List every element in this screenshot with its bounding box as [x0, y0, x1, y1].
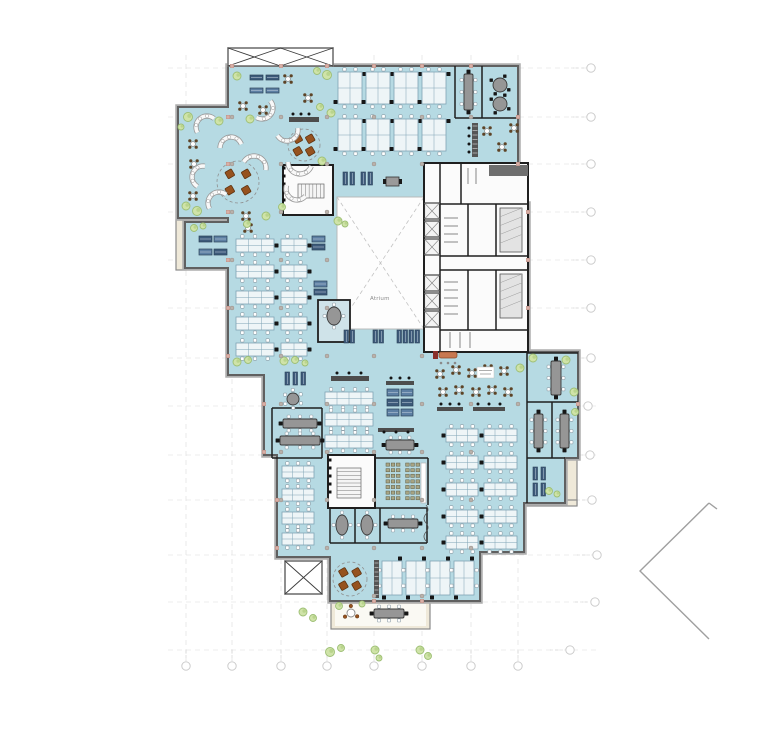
chair — [399, 152, 402, 155]
chair — [450, 443, 453, 446]
auditorium-seat — [391, 485, 395, 488]
bench-cushion — [289, 168, 292, 171]
column-marker — [372, 498, 376, 502]
plant-leaf — [246, 222, 249, 225]
cafe-chair — [290, 81, 293, 84]
cafe-chair — [310, 93, 313, 96]
chair-dark — [442, 515, 446, 519]
chair-dark — [563, 448, 567, 452]
chair — [510, 532, 513, 535]
column-marker — [325, 402, 329, 406]
round-table — [493, 97, 507, 111]
cafe-chair — [445, 394, 448, 397]
chair — [299, 331, 302, 334]
auditorium-seat — [406, 474, 410, 477]
chair-dark — [398, 557, 402, 561]
chair — [488, 506, 491, 509]
plant-leaf — [312, 616, 315, 619]
auditorium-seat — [416, 463, 420, 466]
column-marker — [325, 210, 329, 214]
chair — [460, 425, 463, 428]
chair — [402, 584, 405, 587]
chair — [299, 279, 302, 282]
chair — [253, 235, 256, 238]
cafe-chair — [265, 105, 268, 108]
cafe-chair — [494, 385, 497, 388]
chair — [341, 409, 344, 412]
cafe-chair — [487, 385, 490, 388]
chair — [460, 90, 463, 93]
cafe-chair — [503, 394, 506, 397]
stool — [468, 143, 471, 146]
auditorium-seat — [406, 497, 410, 500]
chair — [562, 388, 565, 391]
print-station — [386, 177, 399, 186]
chair — [284, 393, 287, 396]
chair — [556, 441, 559, 444]
chair — [562, 376, 565, 379]
chair-dark — [480, 541, 484, 545]
cafe-chair — [499, 373, 502, 376]
column-marker — [469, 115, 473, 119]
chair — [307, 525, 310, 528]
chair — [488, 550, 491, 553]
column-marker — [230, 115, 234, 119]
column-marker — [325, 115, 329, 119]
chair-dark — [554, 395, 558, 399]
chair — [450, 452, 453, 455]
cafe-chair — [188, 191, 191, 194]
cafe-chair — [482, 133, 485, 136]
chair — [285, 446, 288, 449]
sofa — [439, 352, 457, 358]
column-marker — [230, 210, 234, 214]
auditorium-seat — [411, 469, 415, 472]
stool — [300, 113, 303, 116]
chair-dark — [563, 410, 567, 414]
auditorium-seat — [386, 474, 390, 477]
wall-column-marker — [526, 258, 530, 262]
bench-cushion — [206, 199, 209, 202]
podium — [421, 463, 426, 503]
chair — [253, 313, 256, 316]
chair — [488, 532, 491, 535]
chair — [296, 529, 299, 532]
chair-dark — [414, 443, 418, 447]
wall-column-marker — [420, 599, 424, 603]
cafe-chair — [442, 369, 445, 372]
chair — [499, 452, 502, 455]
chair-dark — [279, 422, 283, 426]
grid-bubble — [588, 496, 596, 504]
cafe-chair — [188, 198, 191, 201]
chair — [450, 425, 453, 428]
stool — [292, 113, 295, 116]
plant-leaf — [345, 222, 348, 225]
bench — [437, 407, 463, 411]
cafe-chair — [188, 139, 191, 142]
chair — [253, 331, 256, 334]
chair — [365, 427, 368, 430]
chair — [286, 339, 289, 342]
plant-leaf — [187, 114, 191, 118]
chair — [286, 502, 289, 505]
grid-bubble — [587, 208, 595, 216]
chair — [286, 485, 289, 488]
chair-dark — [275, 348, 279, 352]
chair — [332, 523, 335, 526]
chair — [510, 425, 513, 428]
cafe-chair — [506, 373, 509, 376]
chair — [286, 529, 289, 532]
auditorium-seat — [386, 497, 390, 500]
chair — [547, 376, 550, 379]
column-marker — [279, 402, 283, 406]
cafe-chair — [241, 218, 244, 221]
chair-dark — [480, 434, 484, 438]
chair — [398, 451, 401, 454]
bench-cushion — [285, 191, 288, 194]
bench-cushion — [295, 134, 298, 137]
bench-cushion — [248, 155, 251, 158]
column-marker — [279, 115, 283, 119]
chair — [427, 152, 430, 155]
cafe-table — [261, 108, 266, 113]
chair — [341, 431, 344, 434]
chair-dark — [404, 612, 408, 616]
auditorium-seat — [391, 469, 395, 472]
plant-leaf — [181, 125, 184, 128]
cafe-chair — [195, 139, 198, 142]
plant-leaf — [218, 118, 222, 122]
bench — [386, 381, 414, 385]
cafe-chair — [283, 74, 286, 77]
chair — [438, 68, 441, 71]
cafe-chair — [489, 126, 492, 129]
wall-column-marker — [275, 498, 279, 502]
chair-dark — [334, 147, 338, 151]
chair — [530, 441, 533, 444]
grid-bubble — [586, 451, 594, 459]
chair — [510, 524, 513, 527]
chair — [354, 115, 357, 118]
chair — [488, 497, 491, 500]
chair — [286, 279, 289, 282]
chair-dark — [275, 296, 279, 300]
cafe-chair — [250, 230, 253, 233]
cafe-table — [485, 129, 490, 134]
chair — [438, 105, 441, 108]
wall-castellation — [283, 199, 286, 202]
chair — [471, 506, 474, 509]
meeting-table — [374, 609, 404, 618]
cafe-chair — [478, 394, 481, 397]
chair-dark — [362, 100, 366, 104]
column-marker — [279, 450, 283, 454]
column-marker — [420, 594, 424, 598]
chair — [411, 529, 414, 532]
bench-cushion — [296, 172, 299, 175]
bench-cushion — [227, 135, 230, 138]
cafe-chair — [349, 604, 353, 608]
wall-column-marker — [279, 64, 283, 68]
column-marker — [279, 210, 283, 214]
bench-cushion — [263, 160, 266, 163]
chair — [499, 470, 502, 473]
chair — [307, 485, 310, 488]
chair — [475, 568, 478, 571]
chair — [329, 388, 332, 391]
auditorium-seat — [406, 463, 410, 466]
grid-bubble — [587, 256, 595, 264]
chair — [312, 432, 315, 435]
chair — [296, 546, 299, 549]
chair — [510, 479, 513, 482]
grid-bubble — [591, 598, 599, 606]
chair — [450, 479, 453, 482]
chair — [241, 339, 244, 342]
chair — [299, 402, 302, 405]
chair-dark — [494, 111, 497, 114]
chair — [298, 432, 301, 435]
plant-leaf — [329, 649, 333, 653]
bench-cushion — [282, 139, 285, 142]
chair — [499, 506, 502, 509]
cafe-chair — [265, 112, 268, 115]
cafe-chair — [494, 392, 497, 395]
chair-dark — [480, 488, 484, 492]
chair-dark — [308, 296, 312, 300]
chair — [530, 429, 533, 432]
chair — [286, 235, 289, 238]
plant-leaf — [247, 358, 250, 361]
column-marker — [420, 498, 424, 502]
chair — [410, 68, 413, 71]
chair — [397, 605, 400, 608]
column-marker — [420, 546, 424, 550]
cafe-chair — [303, 93, 306, 96]
cafe-chair — [355, 615, 359, 619]
chair — [241, 235, 244, 238]
bench-cushion — [191, 172, 194, 175]
bench-cushion — [304, 171, 307, 174]
column-marker — [469, 450, 473, 454]
chair-dark — [442, 461, 446, 465]
chair — [341, 449, 344, 452]
column-marker — [230, 258, 234, 262]
cafe-chair — [245, 101, 248, 104]
column-marker — [420, 354, 424, 358]
chair — [329, 431, 332, 434]
chair — [547, 388, 550, 391]
chair — [353, 431, 356, 434]
cafe-chair — [458, 372, 461, 375]
auditorium-seat — [416, 491, 420, 494]
cafe-chair — [189, 166, 192, 169]
auditorium-seat — [386, 485, 390, 488]
chair-dark — [418, 147, 422, 151]
chair-dark — [275, 270, 279, 274]
chair-dark — [480, 461, 484, 465]
chair — [544, 429, 547, 432]
chair — [266, 331, 269, 334]
wall-castellation — [329, 491, 332, 494]
chair — [307, 529, 310, 532]
chair — [399, 105, 402, 108]
chair — [266, 261, 269, 264]
cafe-chair — [195, 191, 198, 194]
auditorium-seat — [396, 497, 400, 500]
auditorium-seat — [396, 463, 400, 466]
bench — [289, 117, 319, 122]
chair — [292, 406, 295, 409]
chair — [307, 479, 310, 482]
cafe-chair — [442, 376, 445, 379]
chair — [450, 568, 453, 571]
chair — [488, 443, 491, 446]
cafe-chair — [478, 387, 481, 390]
auditorium-seat — [396, 485, 400, 488]
cafe-table — [470, 371, 475, 376]
chair — [296, 479, 299, 482]
chair — [343, 115, 346, 118]
bench-cushion — [198, 117, 201, 120]
column-marker — [279, 354, 283, 358]
wall-column-marker — [516, 162, 520, 166]
chair — [266, 287, 269, 290]
auditorium-seat — [396, 480, 400, 483]
chair — [471, 479, 474, 482]
wall-column-marker — [516, 115, 520, 119]
cafe-chair — [454, 385, 457, 388]
chair-dark — [454, 596, 458, 600]
stool — [408, 377, 411, 380]
chair — [397, 619, 400, 622]
cafe-chair — [310, 100, 313, 103]
auditorium-seat — [411, 480, 415, 483]
chair — [510, 470, 513, 473]
chair — [475, 584, 478, 587]
auditorium-seat — [406, 480, 410, 483]
chair — [365, 511, 368, 514]
cafe-chair — [454, 392, 457, 395]
chair — [471, 532, 474, 535]
chair — [266, 339, 269, 342]
chair — [266, 279, 269, 282]
core-dark-zone — [489, 165, 528, 176]
chair — [341, 388, 344, 391]
auditorium-seat — [416, 485, 420, 488]
chair-dark — [418, 100, 422, 104]
chair — [499, 479, 502, 482]
grid-bubble — [228, 662, 236, 670]
cafe-chair — [438, 387, 441, 390]
auditorium-seat — [396, 474, 400, 477]
cafe-chair — [435, 376, 438, 379]
chair — [474, 102, 477, 105]
chair — [296, 525, 299, 528]
plant-leaf — [337, 218, 341, 222]
cafe-table — [306, 96, 311, 101]
auditorium-seat — [391, 474, 395, 477]
chair — [410, 105, 413, 108]
auditorium-seat — [411, 485, 415, 488]
chair-dark — [317, 422, 321, 426]
column-marker — [372, 115, 376, 119]
bench-cushion — [289, 139, 292, 142]
round-table — [347, 609, 355, 617]
plant-leaf — [305, 361, 308, 364]
chair-dark — [422, 557, 426, 561]
chair — [410, 115, 413, 118]
auditorium-seat — [416, 469, 420, 472]
chair — [510, 506, 513, 509]
cafe-chair — [504, 149, 507, 152]
bench-cushion — [221, 139, 224, 142]
chair-dark — [503, 94, 506, 97]
chair — [460, 532, 463, 535]
chair — [299, 253, 302, 256]
cafe-chair — [303, 100, 306, 103]
meeting-table — [386, 440, 414, 450]
chair — [286, 287, 289, 290]
chair-dark — [406, 596, 410, 600]
chair — [287, 415, 290, 418]
grid-bubble — [418, 662, 426, 670]
grid-bubble — [584, 402, 592, 410]
cafe-chair — [489, 133, 492, 136]
column-marker — [469, 402, 473, 406]
plant-leaf — [281, 205, 284, 208]
auditorium-seat — [386, 480, 390, 483]
chair — [329, 427, 332, 430]
chair — [499, 532, 502, 535]
chair-dark — [490, 98, 493, 101]
cafe-chair — [482, 126, 485, 129]
chair — [371, 68, 374, 71]
auditorium-seat — [416, 480, 420, 483]
column-marker — [230, 306, 234, 310]
cafe-chair — [445, 387, 448, 390]
oval-table — [361, 515, 373, 535]
stool — [488, 403, 491, 406]
grid-bubble — [182, 662, 190, 670]
chair — [353, 427, 356, 430]
chair — [488, 479, 491, 482]
chair — [471, 470, 474, 473]
chair — [299, 235, 302, 238]
chair — [389, 436, 392, 439]
grid-bubble — [323, 662, 331, 670]
chair — [399, 68, 402, 71]
bench — [331, 376, 369, 381]
chair — [343, 68, 346, 71]
chair — [460, 550, 463, 553]
chair — [460, 78, 463, 81]
chair — [471, 550, 474, 553]
chair-dark — [362, 147, 366, 151]
chair — [450, 532, 453, 535]
wall-column-marker — [226, 210, 230, 214]
cafe-chair — [290, 74, 293, 77]
cafe-table — [454, 368, 459, 373]
column-marker — [279, 258, 283, 262]
auditorium-seat — [406, 491, 410, 494]
stool — [499, 403, 502, 406]
auditorium-seat — [391, 480, 395, 483]
chair — [341, 427, 344, 430]
cafe-chair — [258, 112, 261, 115]
